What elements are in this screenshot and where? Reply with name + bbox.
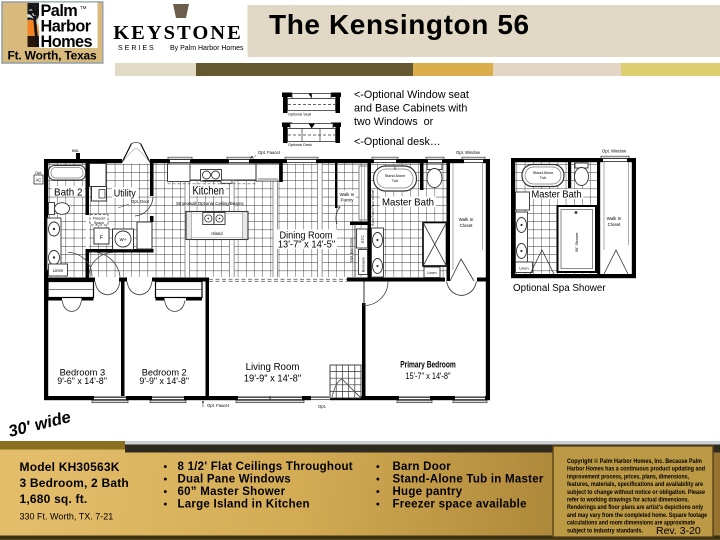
svg-text:Copyright © Palm Harbor Homes,: Copyright © Palm Harbor Homes, Inc. Beca… [567, 458, 702, 465]
svg-text:Huge pantry: Huge pantry [393, 486, 463, 498]
svg-text:Pantry: Pantry [340, 198, 354, 203]
svg-text:Optional Seat: Optional Seat [288, 113, 312, 117]
svg-text:Master Bath: Master Bath [532, 190, 582, 201]
svg-text:•: • [376, 499, 380, 511]
svg-text:features, materials, specifica: features, materials, specifications and … [567, 482, 704, 488]
svg-text:AC: AC [36, 178, 42, 183]
svg-text:Stand-Alone Tub in Master: Stand-Alone Tub in Master [393, 474, 544, 486]
svg-text:Harbor Homes has a continuous: Harbor Homes has a continuous product up… [567, 467, 705, 473]
svg-text:<-Optional Window seat: <-Optional Window seat [354, 89, 469, 101]
svg-text:19'-9" x 14'-8": 19'-9" x 14'-8" [244, 373, 302, 384]
svg-text:Walk In: Walk In [607, 216, 622, 221]
svg-text:Bookcase: Bookcase [362, 257, 366, 272]
svg-text:•: • [376, 486, 380, 498]
svg-text:Living Room: Living Room [246, 362, 300, 373]
svg-text:BBL: BBL [72, 149, 79, 153]
svg-text:Strongwall Optional Ceiling Be: Strongwall Optional Ceiling Beams [176, 201, 244, 206]
svg-text:•: • [376, 474, 380, 486]
svg-text:ETC: ETC [360, 235, 365, 243]
svg-text:•: • [164, 474, 168, 486]
svg-text:Renderings and floor plans are: Renderings and floor plans are artist's … [567, 505, 704, 511]
svg-text:By Palm Harbor Homes: By Palm Harbor Homes [170, 45, 244, 52]
svg-text:Tub: Tub [540, 176, 546, 180]
svg-text:•: • [376, 461, 380, 473]
svg-text:Kitchen: Kitchen [193, 185, 225, 198]
svg-text:Closet: Closet [460, 223, 474, 228]
svg-text:13'-7" x 14'-5": 13'-7" x 14'-5" [278, 240, 336, 251]
svg-text:Walk In: Walk In [340, 192, 355, 197]
svg-text:330 Ft. Worth, TX. 7-21: 330 Ft. Worth, TX. 7-21 [20, 512, 114, 522]
svg-text:subject to change without noti: subject to change without notice or obli… [567, 490, 706, 496]
svg-text:Ft. Worth, Texas: Ft. Worth, Texas [7, 49, 97, 63]
svg-text:Space: Space [94, 221, 104, 225]
svg-text:1,680 sq. ft.: 1,680 sq. ft. [20, 492, 88, 506]
svg-text:•: • [164, 486, 168, 498]
svg-text:•: • [164, 461, 168, 473]
svg-text:Freezer: Freezer [93, 217, 106, 221]
svg-text:refer to working drawings for: refer to working drawings for actual dim… [567, 498, 689, 504]
svg-text:Opt.: Opt. [35, 171, 42, 175]
svg-text:Optional Desk: Optional Desk [288, 143, 312, 147]
svg-text:15'-7" x 14'-8": 15'-7" x 14'-8" [405, 371, 450, 381]
svg-text:Primary Bedroom: Primary Bedroom [400, 360, 456, 370]
svg-text:Utility: Utility [114, 188, 137, 200]
svg-text:and may vary from the complete: and may vary from the completed home. Sq… [567, 513, 708, 519]
svg-text:Opt. Window: Opt. Window [456, 150, 481, 155]
svg-text:W+: W+ [120, 237, 127, 242]
svg-text:96" Shower: 96" Shower [575, 232, 579, 252]
svg-text:Freezer space available: Freezer space available [393, 499, 527, 511]
svg-text:Linen: Linen [427, 271, 436, 275]
svg-text:9'-6" x 14'-8": 9'-6" x 14'-8" [57, 376, 107, 386]
svg-text:Linen: Linen [53, 268, 64, 273]
svg-text:Model KH30563K: Model KH30563K [20, 460, 120, 474]
svg-text:The Kensington 56: The Kensington 56 [269, 9, 530, 40]
svg-text:Opt. Faucet: Opt. Faucet [207, 403, 230, 408]
svg-text:SERIES: SERIES [118, 45, 156, 52]
svg-text:subject to industry standards.: subject to industry standards. [567, 528, 643, 534]
svg-text:TM: TM [80, 5, 87, 10]
svg-text:Rev. 3-20: Rev. 3-20 [656, 525, 701, 537]
svg-text:and Base Cabinets with: and Base Cabinets with [354, 103, 467, 115]
svg-text:Optional Spa Shower: Optional Spa Shower [513, 283, 606, 294]
svg-text:3 Bedroom, 2 Bath: 3 Bedroom, 2 Bath [20, 476, 129, 490]
svg-text:Robe/Towel Rack w/Shelf: Robe/Towel Rack w/Shelf [371, 190, 375, 226]
svg-text:Opt.: Opt. [318, 404, 326, 409]
svg-text:Bath 2: Bath 2 [54, 186, 83, 198]
svg-text:improvement process, prices, p: improvement process, prices, plans, dime… [567, 474, 689, 480]
svg-text:Stand Alone: Stand Alone [385, 174, 405, 178]
svg-text:two Windows or: two Windows or [354, 116, 434, 128]
svg-text:F: F [100, 235, 103, 241]
svg-text:Walk In: Walk In [459, 217, 474, 222]
svg-text:KEYSTONE: KEYSTONE [113, 22, 243, 44]
svg-text:Opt. Window: Opt. Window [602, 149, 627, 154]
svg-text:Opt. Faucet: Opt. Faucet [258, 150, 281, 155]
svg-text:60” Master Shower: 60” Master Shower [178, 486, 286, 498]
svg-text:Stand Alone: Stand Alone [533, 171, 553, 175]
svg-text:8 1/2' Flat Ceilings Throughou: 8 1/2' Flat Ceilings Throughout [178, 461, 353, 473]
svg-text:Tub: Tub [392, 179, 398, 183]
svg-text:Opt. Door: Opt. Door [131, 199, 150, 204]
svg-text:Linen: Linen [519, 267, 528, 271]
svg-text:<-Optional desk…: <-Optional desk… [354, 136, 441, 148]
svg-text:Large Island in Kitchen: Large Island in Kitchen [178, 499, 310, 511]
svg-text:Dual Pane Windows: Dual Pane Windows [178, 474, 291, 486]
svg-text:Master Bath: Master Bath [382, 197, 434, 209]
svg-text:Island: Island [211, 231, 223, 236]
svg-text:Opt. Barn Door: Opt. Barn Door [350, 237, 354, 262]
svg-text:Closet: Closet [608, 222, 622, 227]
svg-text:Barn Door: Barn Door [393, 461, 452, 473]
svg-text:9'-9" x 14'-8": 9'-9" x 14'-8" [139, 376, 189, 386]
svg-text:•: • [164, 499, 168, 511]
